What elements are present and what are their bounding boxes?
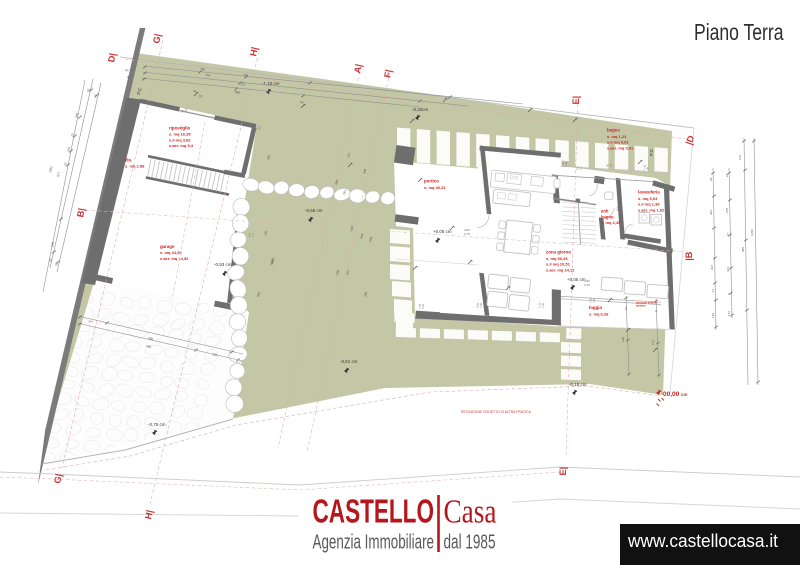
svg-text:680: 680 <box>235 90 241 95</box>
svg-text:ripostiglio: ripostiglio <box>169 126 191 131</box>
svg-text:anti: anti <box>601 209 608 214</box>
svg-text:-0,15 cm: -0,15 cm <box>569 382 587 387</box>
svg-text:149: 149 <box>711 313 715 318</box>
svg-text:-0,20cm: -0,20cm <box>412 107 429 112</box>
svg-text:2,70: 2,70 <box>584 283 590 287</box>
svg-text:dis.: dis. <box>125 158 132 163</box>
svg-text:s.il mq 3,82: s.il mq 3,82 <box>169 137 191 142</box>
svg-text:s.aer. mq 14,52: s.aer. mq 14,52 <box>160 256 189 261</box>
svg-text:|B: |B <box>684 251 694 261</box>
svg-text:s.il mq 0,91: s.il mq 0,91 <box>607 140 629 145</box>
svg-text:Piano Terra: Piano Terra <box>694 19 784 45</box>
svg-text:172: 172 <box>727 311 731 316</box>
svg-text:s.il mq 10,51: s.il mq 10,51 <box>546 262 571 267</box>
svg-text:00,00: 00,00 <box>663 391 680 398</box>
svg-text:loggia: loggia <box>589 305 602 310</box>
svg-text:303: 303 <box>709 210 713 215</box>
svg-text:E|: E| <box>571 96 581 105</box>
svg-text:CASTELLO: CASTELLO <box>313 494 435 531</box>
svg-text:782: 782 <box>243 73 249 78</box>
svg-text:G|: G| <box>151 33 163 45</box>
svg-text:s. mq 6,28: s. mq 6,28 <box>589 311 609 316</box>
svg-text:760: 760 <box>200 67 206 72</box>
svg-text:275: 275 <box>725 208 729 213</box>
svg-text:dal 1985: dal 1985 <box>444 531 496 554</box>
svg-text:B|: B| <box>75 207 86 218</box>
svg-text:s.aer. mq 0,91: s.aer. mq 0,91 <box>607 146 634 151</box>
svg-text:s.aer. mq 1,02: s.aer. mq 1,02 <box>638 208 665 213</box>
svg-text:s. mq 40,32: s. mq 40,32 <box>424 185 446 190</box>
svg-text:s. mq 44,30: s. mq 44,30 <box>160 250 182 255</box>
svg-text:cm: cm <box>681 392 688 397</box>
svg-text:lavatoio: lavatoio <box>636 304 646 308</box>
svg-text:703: 703 <box>205 73 211 78</box>
svg-text:29: 29 <box>709 177 713 181</box>
svg-text:s. mq 1,23: s. mq 1,23 <box>607 134 627 139</box>
svg-text:172: 172 <box>651 340 655 345</box>
svg-text:s.aer. mq 14,12: s.aer. mq 14,12 <box>546 268 575 273</box>
svg-text:s. mq 16,35: s. mq 16,35 <box>169 132 191 137</box>
svg-text:E|: E| <box>558 467 568 476</box>
svg-text:11: 11 <box>711 289 715 292</box>
svg-text:-0,93 cm: -0,93 cm <box>214 262 232 267</box>
svg-text:www.castellocasa.it: www.castellocasa.it <box>627 530 778 551</box>
svg-text:Agenzia Immobiliare: Agenzia Immobiliare <box>313 531 435 554</box>
svg-text:s.aer. mq 5,4: s.aer. mq 5,4 <box>169 143 194 148</box>
svg-text:Casa: Casa <box>444 494 497 531</box>
svg-text:lavanderia: lavanderia <box>638 190 660 195</box>
svg-text:337: 337 <box>710 265 714 270</box>
svg-text:P.C: P.C <box>649 148 654 156</box>
svg-text:s. mq 5,63: s. mq 5,63 <box>638 196 658 201</box>
svg-text:s. mq 56,45: s. mq 56,45 <box>546 256 568 261</box>
svg-text:-0,55 cm: -0,55 cm <box>305 208 323 213</box>
svg-text:1259: 1259 <box>750 229 754 236</box>
svg-text:D|: D| <box>106 52 117 63</box>
svg-text:723: 723 <box>240 82 246 87</box>
svg-text:149: 149 <box>621 337 625 342</box>
svg-text:-0,51 cm: -0,51 cm <box>340 359 358 364</box>
svg-text:G|: G| <box>52 473 64 485</box>
svg-text:331: 331 <box>726 267 730 272</box>
svg-text:-0,75 cm: -0,75 cm <box>148 422 166 427</box>
svg-text:11: 11 <box>624 306 628 310</box>
svg-text:s. mq 2.88: s. mq 2.88 <box>125 163 145 168</box>
svg-text:23: 23 <box>725 173 729 177</box>
svg-text:s. mq 2,45: s. mq 2,45 <box>601 220 621 225</box>
svg-text:2,79: 2,79 <box>464 232 470 236</box>
svg-text:zona giorno: zona giorno <box>546 250 571 255</box>
svg-text:17: 17 <box>726 232 730 236</box>
svg-text:portico: portico <box>424 179 439 184</box>
svg-text:garage: garage <box>160 244 175 249</box>
svg-text:RECINZIONE OGGETTO DI ALTRA PR: RECINZIONE OGGETTO DI ALTRA PRATICA <box>461 410 531 414</box>
svg-text:s.il mq 1,36: s.il mq 1,36 <box>638 202 660 207</box>
svg-text:176: 176 <box>738 155 742 160</box>
svg-text:bagno: bagno <box>601 214 614 219</box>
svg-text:985: 985 <box>741 247 745 252</box>
svg-text:+0,05 cm: +0,05 cm <box>433 229 452 234</box>
